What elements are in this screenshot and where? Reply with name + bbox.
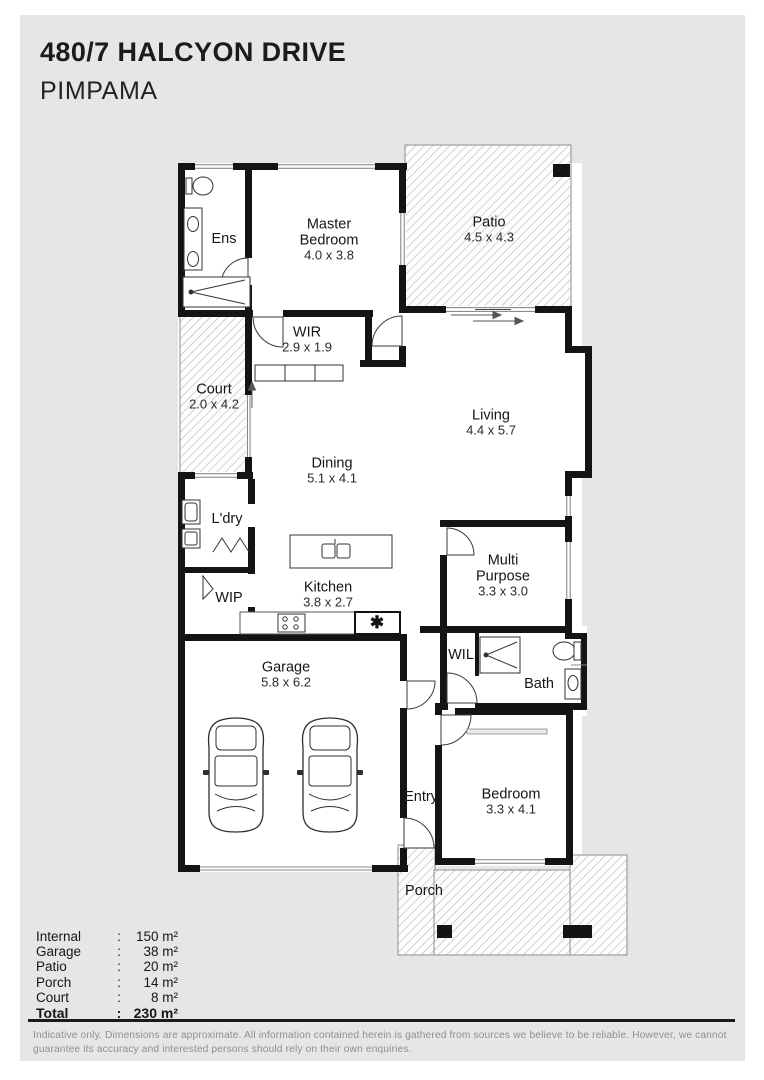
room-label-patio: Patio4.5 x 4.3 [464, 215, 514, 246]
legend-row: Patio:20 m² [36, 959, 276, 974]
legend-value: 20 m² [126, 959, 178, 974]
floor-plan-svg [175, 140, 675, 970]
window [475, 858, 545, 865]
bath-toilet-icon [553, 642, 581, 660]
room-label-bath: Bath [524, 676, 554, 692]
garage-door [200, 865, 372, 872]
floor-plan: Ens Master Bedroom4.0 x 3.8 Patio4.5 x 4… [175, 140, 675, 970]
window [399, 213, 406, 265]
legend-sep: : [112, 929, 126, 944]
bath-shower-icon [480, 637, 520, 673]
washer-icon [182, 529, 200, 548]
pantry-symbol: ✱ [370, 613, 384, 633]
patio-post [553, 164, 570, 177]
legend-value: 8 m² [126, 990, 178, 1005]
room-label-bedroom: Bedroom3.3 x 4.1 [482, 787, 541, 818]
room-label-entry: Entry [404, 789, 438, 805]
legend-label: Court [36, 990, 112, 1005]
legend-row: Porch:14 m² [36, 975, 276, 990]
room-label-dining: Dining5.1 x 4.1 [307, 456, 357, 487]
legend-label: Patio [36, 959, 112, 974]
shower-icon [183, 277, 250, 307]
vanity-icon [184, 208, 202, 270]
legend-sep: : [112, 990, 126, 1005]
area-legend: Internal:150 m² Garage:38 m² Patio:20 m²… [36, 929, 276, 1022]
room-label-ens: Ens [212, 231, 237, 247]
toilet-icon [186, 177, 213, 195]
island-bench [290, 535, 392, 568]
window [195, 472, 237, 479]
legend-row: Internal:150 m² [36, 929, 276, 944]
legend-label: Garage [36, 944, 112, 959]
porch-post [563, 925, 592, 938]
bath-basin-icon [565, 669, 581, 699]
laundry-tub-icon [182, 500, 200, 524]
legend-sep: : [112, 975, 126, 990]
window [565, 542, 572, 599]
room-label-wir: WIR2.9 x 1.9 [282, 325, 332, 356]
room-label-kitchen: Kitchen3.8 x 2.7 [303, 580, 353, 611]
sliding-door [246, 395, 251, 457]
legend-row: Court:8 m² [36, 990, 276, 1005]
legend-label: Internal [36, 929, 112, 944]
cooktop-icon [278, 614, 305, 632]
window [195, 163, 233, 170]
room-label-porch: Porch [405, 883, 443, 899]
floorplan-sheet: 480/7 HALCYON DRIVE PIMPAMA [20, 15, 745, 1061]
page-title: 480/7 HALCYON DRIVE [40, 37, 346, 68]
legend-value: 38 m² [126, 944, 178, 959]
room-label-garage: Garage5.8 x 6.2 [261, 660, 311, 691]
window [278, 163, 375, 170]
sliding-door [446, 306, 535, 313]
legend-sep: : [112, 959, 126, 974]
robe-line [467, 729, 547, 734]
legend-row: Garage:38 m² [36, 944, 276, 959]
page-subtitle: PIMPAMA [40, 77, 158, 106]
disclaimer-text: Indicative only. Dimensions are approxim… [33, 1029, 735, 1058]
legend-value: 14 m² [126, 975, 178, 990]
room-label-wil: WIL [448, 647, 474, 663]
room-label-ldry: L'dry [212, 511, 243, 527]
porch-post [437, 925, 452, 938]
wardrobe-shelves [255, 365, 343, 381]
car-icon [297, 718, 363, 832]
room-label-living: Living4.4 x 5.7 [466, 408, 516, 439]
room-label-multi: Multi Purpose3.3 x 3.0 [465, 552, 541, 599]
room-label-court: Court2.0 x 4.2 [189, 382, 239, 413]
porch-hatch-right [570, 855, 627, 955]
window [565, 496, 572, 516]
car-icon [203, 718, 269, 832]
room-label-wip: WIP [215, 590, 242, 606]
room-label-master: Master Bedroom4.0 x 3.8 [283, 216, 375, 263]
legend-label: Porch [36, 975, 112, 990]
legend-sep: : [112, 944, 126, 959]
legend-value: 150 m² [126, 929, 178, 944]
legend-divider [28, 1019, 735, 1022]
